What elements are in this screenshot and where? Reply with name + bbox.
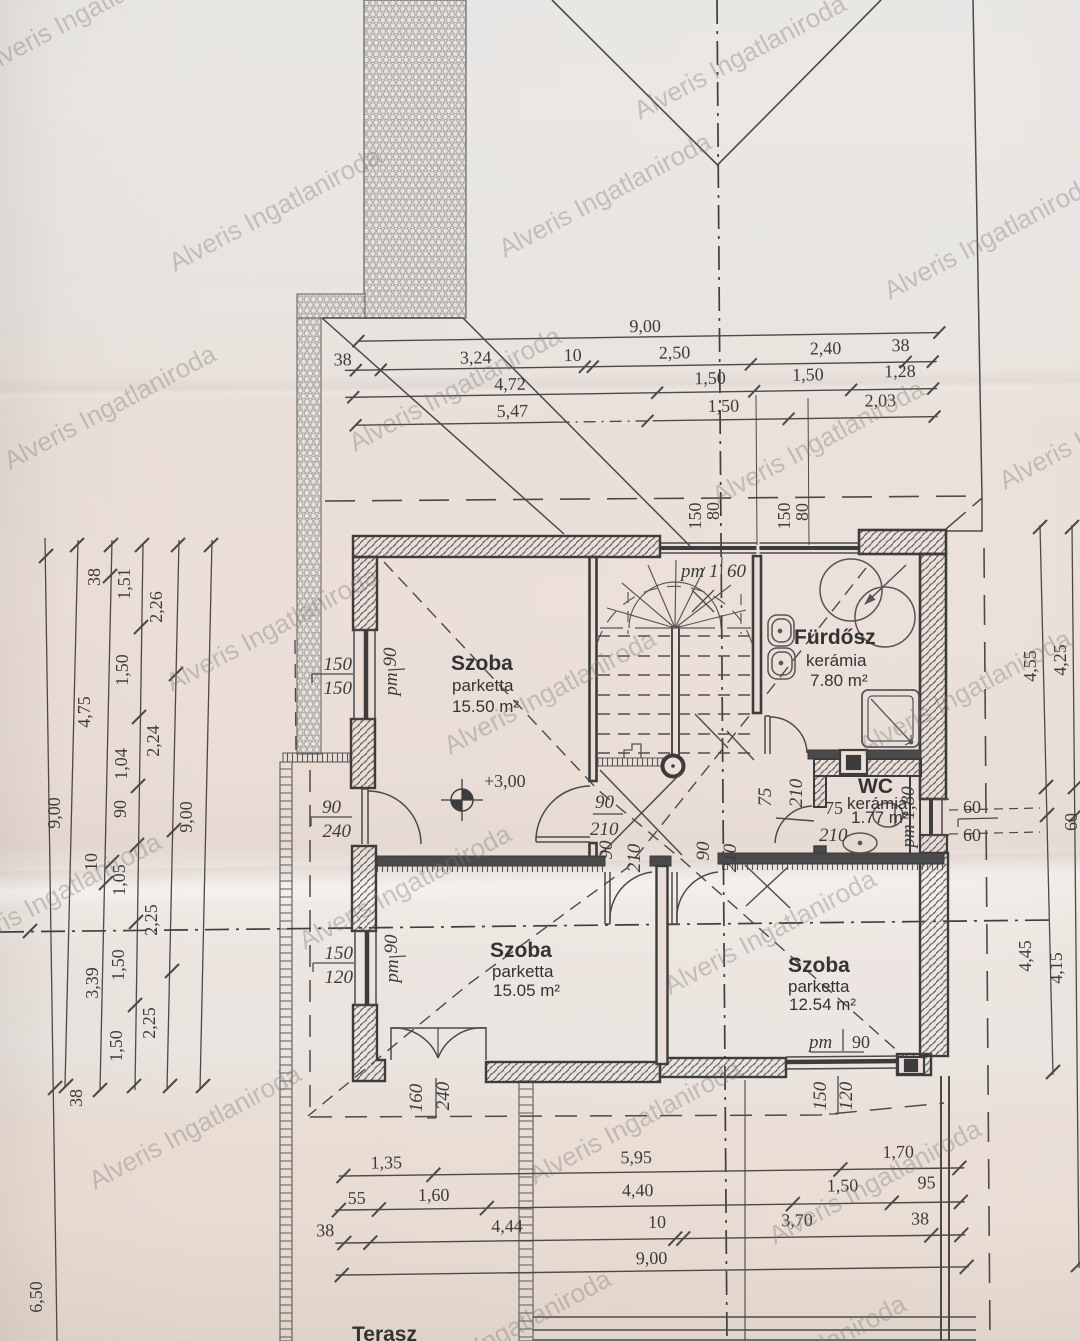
svg-text:1,51: 1,51 [114, 568, 134, 600]
svg-text:pm: pm [807, 1032, 832, 1053]
svg-text:15.05 m²: 15.05 m² [493, 981, 560, 1000]
svg-text:parketta: parketta [452, 676, 514, 695]
svg-text:150: 150 [810, 1081, 831, 1110]
svg-text:1,04: 1,04 [111, 748, 131, 780]
svg-text:38: 38 [891, 335, 909, 355]
svg-text:210: 210 [624, 843, 645, 872]
svg-text:210: 210 [819, 825, 848, 846]
svg-text:1,50: 1,50 [106, 1030, 126, 1062]
svg-text:5,47: 5,47 [497, 401, 529, 421]
svg-text:95: 95 [917, 1172, 935, 1192]
svg-text:1,50: 1,50 [108, 949, 128, 981]
svg-text:Alveris Ingatlaniroda: Alveris Ingatlaniroda [161, 560, 384, 697]
svg-text:60: 60 [963, 825, 981, 845]
svg-text:240: 240 [323, 821, 352, 842]
svg-text:pm: pm [381, 672, 402, 697]
svg-text:150: 150 [325, 943, 354, 964]
svg-text:4,75: 4,75 [74, 696, 94, 728]
svg-text:9,00: 9,00 [44, 797, 64, 829]
svg-text:Alveris Ingatlaniroda: Alveris Ingatlaniroda [689, 1288, 912, 1341]
svg-text:parketta: parketta [492, 962, 554, 981]
svg-text:Fürdősz: Fürdősz [794, 626, 876, 649]
svg-text:Alveris Ingatlaniroda: Alveris Ingatlaniroda [707, 373, 930, 510]
svg-text:1,50: 1,50 [707, 396, 739, 416]
svg-text:Alveris Ingatlaniroda: Alveris Ingatlaniroda [764, 1113, 987, 1250]
svg-text:1,50: 1,50 [694, 368, 726, 388]
svg-text:4,40: 4,40 [622, 1180, 654, 1200]
svg-text:2,25: 2,25 [139, 1007, 159, 1039]
svg-text:Alveris Ingatlaniroda: Alveris Ingatlaniroda [879, 168, 1080, 305]
svg-text:160: 160 [406, 1083, 427, 1112]
svg-text:2,24: 2,24 [143, 725, 163, 757]
svg-text:9,00: 9,00 [629, 316, 661, 336]
svg-text:Alveris Ingatlaniroda: Alveris Ingatlaniroda [0, 826, 166, 963]
svg-text:Szoba: Szoba [788, 954, 850, 977]
svg-text:6,50: 6,50 [26, 1281, 46, 1313]
svg-text:12.54 m²: 12.54 m² [789, 995, 856, 1014]
svg-text:10: 10 [563, 345, 581, 365]
svg-text:210: 210 [720, 843, 741, 872]
svg-text:4,15: 4,15 [1046, 952, 1066, 984]
svg-text:10: 10 [648, 1212, 666, 1232]
svg-text:pm 1,80: pm 1,80 [898, 786, 919, 850]
svg-text:2,25: 2,25 [141, 904, 161, 936]
svg-text:60: 60 [727, 561, 747, 582]
svg-text:90: 90 [852, 1032, 870, 1052]
svg-text:150: 150 [774, 503, 794, 530]
svg-text:Alveris Ingatlaniroda: Alveris Ingatlaniroda [494, 126, 717, 263]
svg-text:4,45: 4,45 [1015, 940, 1035, 972]
svg-text:2,26: 2,26 [146, 591, 166, 623]
svg-text:150: 150 [324, 678, 353, 699]
svg-text:+3,00: +3,00 [484, 771, 526, 791]
svg-text:9,00: 9,00 [636, 1248, 668, 1268]
svg-text:75: 75 [755, 788, 776, 807]
svg-text:Szoba: Szoba [490, 939, 552, 962]
svg-text:pm: pm [382, 959, 403, 984]
svg-text:1,60: 1,60 [418, 1185, 450, 1205]
svg-text:2,40: 2,40 [810, 338, 842, 358]
svg-text:3,39: 3,39 [82, 967, 102, 999]
svg-text:38: 38 [334, 349, 352, 369]
svg-text:Szoba: Szoba [451, 652, 513, 675]
svg-text:1,50: 1,50 [112, 654, 132, 686]
svg-text:90: 90 [596, 840, 617, 860]
svg-text:9,00: 9,00 [176, 801, 196, 833]
svg-text:120: 120 [836, 1081, 857, 1110]
svg-text:150: 150 [324, 654, 353, 675]
svg-text:60: 60 [1061, 813, 1080, 831]
svg-text:kerámia: kerámia [806, 651, 867, 670]
svg-text:parketta: parketta [788, 977, 850, 996]
svg-text:38: 38 [316, 1220, 334, 1240]
svg-text:Alveris Ingatlaniroda: Alveris Ingatlaniroda [164, 140, 387, 277]
svg-text:90: 90 [380, 647, 401, 667]
svg-text:Alveris Ingatlaniroda: Alveris Ingatlaniroda [994, 358, 1080, 495]
svg-text:210: 210 [786, 778, 807, 807]
svg-text:90: 90 [595, 792, 615, 813]
svg-text:Terasz: Terasz [352, 1323, 417, 1341]
svg-text:120: 120 [325, 967, 354, 988]
svg-text:55: 55 [348, 1188, 366, 1208]
svg-text:Alveris Ingatlaniroda: Alveris Ingatlaniroda [0, 0, 196, 80]
svg-text:90: 90 [693, 841, 714, 861]
svg-text:75: 75 [825, 798, 843, 818]
svg-text:38: 38 [66, 1089, 86, 1107]
svg-text:Alveris Ingatlaniroda: Alveris Ingatlaniroda [84, 1058, 307, 1195]
svg-text:210: 210 [590, 819, 619, 840]
svg-text:1,35: 1,35 [370, 1152, 402, 1172]
svg-text:Alveris Ingatlaniroda: Alveris Ingatlaniroda [0, 338, 221, 475]
svg-text:150: 150 [685, 503, 705, 530]
svg-text:80: 80 [792, 503, 812, 521]
svg-text:4,44: 4,44 [491, 1216, 523, 1236]
svg-text:38: 38 [84, 568, 104, 586]
svg-text:90: 90 [110, 800, 130, 818]
svg-text:Alveris Ingatlaniroda: Alveris Ingatlaniroda [854, 623, 1077, 760]
svg-text:90: 90 [322, 797, 342, 818]
svg-text:60: 60 [963, 797, 981, 817]
svg-text:90: 90 [381, 934, 402, 954]
svg-text:2,50: 2,50 [659, 342, 691, 362]
svg-text:pm 1: pm 1 [679, 561, 718, 582]
svg-text:38: 38 [911, 1208, 929, 1228]
svg-text:1,50: 1,50 [792, 364, 824, 384]
svg-text:5,95: 5,95 [620, 1147, 652, 1167]
svg-text:7.80 m²: 7.80 m² [810, 671, 868, 690]
